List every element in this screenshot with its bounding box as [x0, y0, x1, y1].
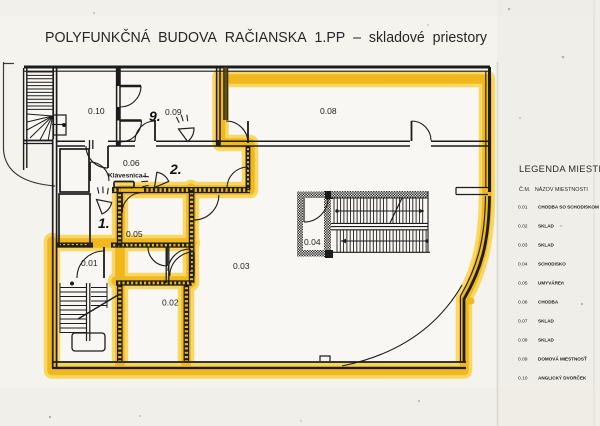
- svg-text:9.: 9.: [149, 108, 161, 124]
- svg-text:0.07: 0.07: [518, 319, 528, 325]
- svg-text:0.09: 0.09: [165, 107, 182, 117]
- svg-text:0.08: 0.08: [518, 338, 528, 344]
- svg-text:0.03: 0.03: [518, 243, 528, 249]
- svg-text:POLYFUNKČNÁ BUDOVA RAČIANSKA: POLYFUNKČNÁ BUDOVA RAČIANSKA 1.PP – skla…: [45, 29, 488, 46]
- svg-text:SKLAD: SKLAD: [538, 243, 555, 248]
- svg-text:CHODBA SO SCHODISKOM: CHODBA SO SCHODISKOM: [538, 205, 599, 210]
- svg-text:0.10: 0.10: [88, 106, 105, 116]
- svg-text:SKLAD: SKLAD: [538, 338, 555, 343]
- svg-text:0.02: 0.02: [518, 224, 528, 230]
- svg-text:DOMOVÁ MIESTNOSŤ: DOMOVÁ MIESTNOSŤ: [538, 355, 587, 362]
- svg-text:0.08: 0.08: [320, 106, 337, 116]
- svg-text:0.05: 0.05: [126, 229, 143, 239]
- svg-text:0.05: 0.05: [518, 281, 528, 287]
- svg-text:0.02: 0.02: [162, 298, 179, 308]
- svg-text:0.01: 0.01: [81, 258, 98, 268]
- svg-text:0.01: 0.01: [518, 205, 528, 211]
- svg-text:CHODBA: CHODBA: [538, 300, 559, 305]
- svg-text:0.04: 0.04: [518, 262, 528, 268]
- svg-text:0.04: 0.04: [304, 237, 321, 247]
- svg-text:0.09: 0.09: [518, 357, 528, 363]
- svg-text:SKLAD: SKLAD: [538, 224, 555, 229]
- svg-text:Č.M. NÁZOV MIESTNOSTI: Č.M. NÁZOV MIESTNOSTI: [519, 186, 588, 193]
- svg-text:Klávesnica I: Klávesnica I: [108, 173, 146, 180]
- svg-text:UMYVÁREṅ: UMYVÁREṅ: [538, 280, 564, 286]
- svg-text:0.03: 0.03: [233, 261, 250, 271]
- svg-text:0.06: 0.06: [123, 158, 140, 168]
- svg-text:1.: 1.: [98, 215, 110, 231]
- svg-text:SKLAD: SKLAD: [538, 319, 555, 324]
- svg-text:0.06: 0.06: [518, 300, 528, 306]
- svg-text:2.: 2.: [169, 161, 182, 177]
- svg-text:SCHODISKO: SCHODISKO: [538, 262, 566, 267]
- svg-text:0.10: 0.10: [518, 376, 528, 382]
- svg-text:ANGLICKÝ DVORČEK: ANGLICKÝ DVORČEK: [538, 375, 587, 381]
